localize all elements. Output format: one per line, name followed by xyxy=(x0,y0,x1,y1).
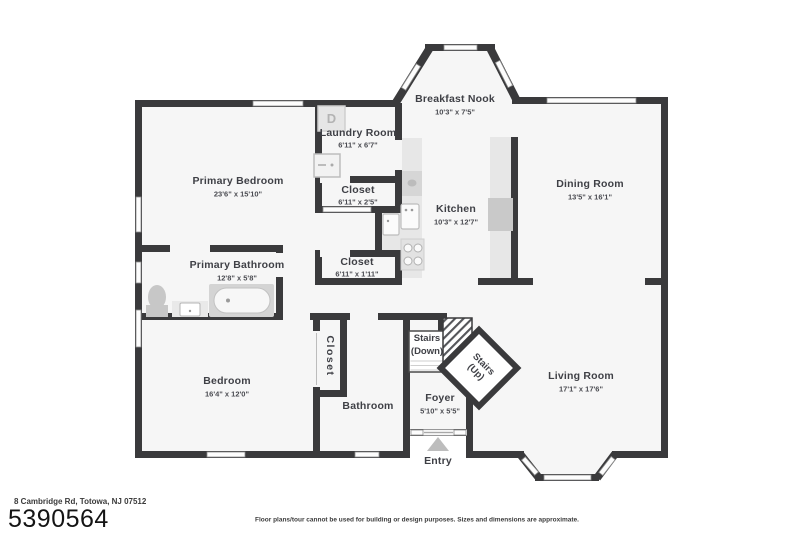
stairs-down-label: Stairs (Down) xyxy=(411,333,443,359)
room-dims-foyer: 5'10" x 5'5" xyxy=(420,407,460,416)
room-label-closet-3: Closet xyxy=(324,335,336,376)
room-dims-dining-room: 13'5" x 16'1" xyxy=(568,193,612,202)
window-icon xyxy=(136,310,141,347)
front-door xyxy=(410,430,467,436)
refrigerator-icon xyxy=(488,198,513,231)
room-label-primary-bathroom: Primary Bathroom xyxy=(190,259,285,271)
room-label-foyer: Foyer xyxy=(425,392,455,404)
room-label-kitchen: Kitchen xyxy=(436,203,476,215)
room-dims-breakfast-nook: 10'3" x 7'5" xyxy=(435,108,475,117)
window-icon xyxy=(136,262,141,283)
window-icon xyxy=(544,475,591,480)
room-label-dining-room: Dining Room xyxy=(556,178,624,190)
oven-icon xyxy=(383,214,399,235)
washer-icon xyxy=(314,154,340,177)
window-icon xyxy=(444,45,477,50)
window-icon xyxy=(253,101,303,106)
window-icon xyxy=(207,452,245,457)
room-dims-primary-bathroom: 12'8" x 5'8" xyxy=(217,274,257,283)
room-dims-closet-1: 6'11" x 2'5" xyxy=(338,198,377,207)
room-label-bedroom: Bedroom xyxy=(203,375,251,387)
room-dims-primary-bedroom: 23'6" x 15'10" xyxy=(214,190,262,199)
room-label-laundry-room: Laundry Room xyxy=(320,127,397,139)
stairs-down-line1: Stairs xyxy=(411,333,443,346)
room-label-bathroom: Bathroom xyxy=(342,400,393,412)
stove-icon xyxy=(401,239,424,270)
listing-number: 5390564 xyxy=(8,505,109,533)
room-label-closet-1: Closet xyxy=(341,184,374,196)
room-dims-bedroom: 16'4" x 12'0" xyxy=(205,390,249,399)
window-icon xyxy=(136,197,141,232)
toilet-icon xyxy=(146,305,168,317)
floor-plan: D xyxy=(0,0,800,533)
entry-label: Entry xyxy=(424,455,452,467)
room-dims-closet-2: 6'11" x 1'11" xyxy=(335,270,378,279)
room-dims-laundry-room: 6'11" x 6'7" xyxy=(338,141,377,150)
room-label-primary-bedroom: Primary Bedroom xyxy=(192,175,283,187)
sink-icon xyxy=(180,303,200,316)
room-dims-kitchen: 10'3" x 12'7" xyxy=(434,218,478,227)
room-dims-living-room: 17'1" x 17'6" xyxy=(559,385,603,394)
kitchen-sink-icon xyxy=(401,204,419,229)
disclaimer-text: Floor plans/tour cannot be used for buil… xyxy=(255,517,579,524)
window-icon xyxy=(323,207,371,212)
window-icon xyxy=(547,98,636,103)
floor-plan-drawing: D xyxy=(0,0,800,533)
room-label-breakfast-nook: Breakfast Nook xyxy=(415,93,495,105)
room-label-closet-2: Closet xyxy=(340,256,373,268)
window-icon xyxy=(355,452,379,457)
dryer-letter: D xyxy=(327,111,336,126)
room-label-living-room: Living Room xyxy=(548,370,614,382)
stairs-down-line2: (Down) xyxy=(411,346,443,359)
